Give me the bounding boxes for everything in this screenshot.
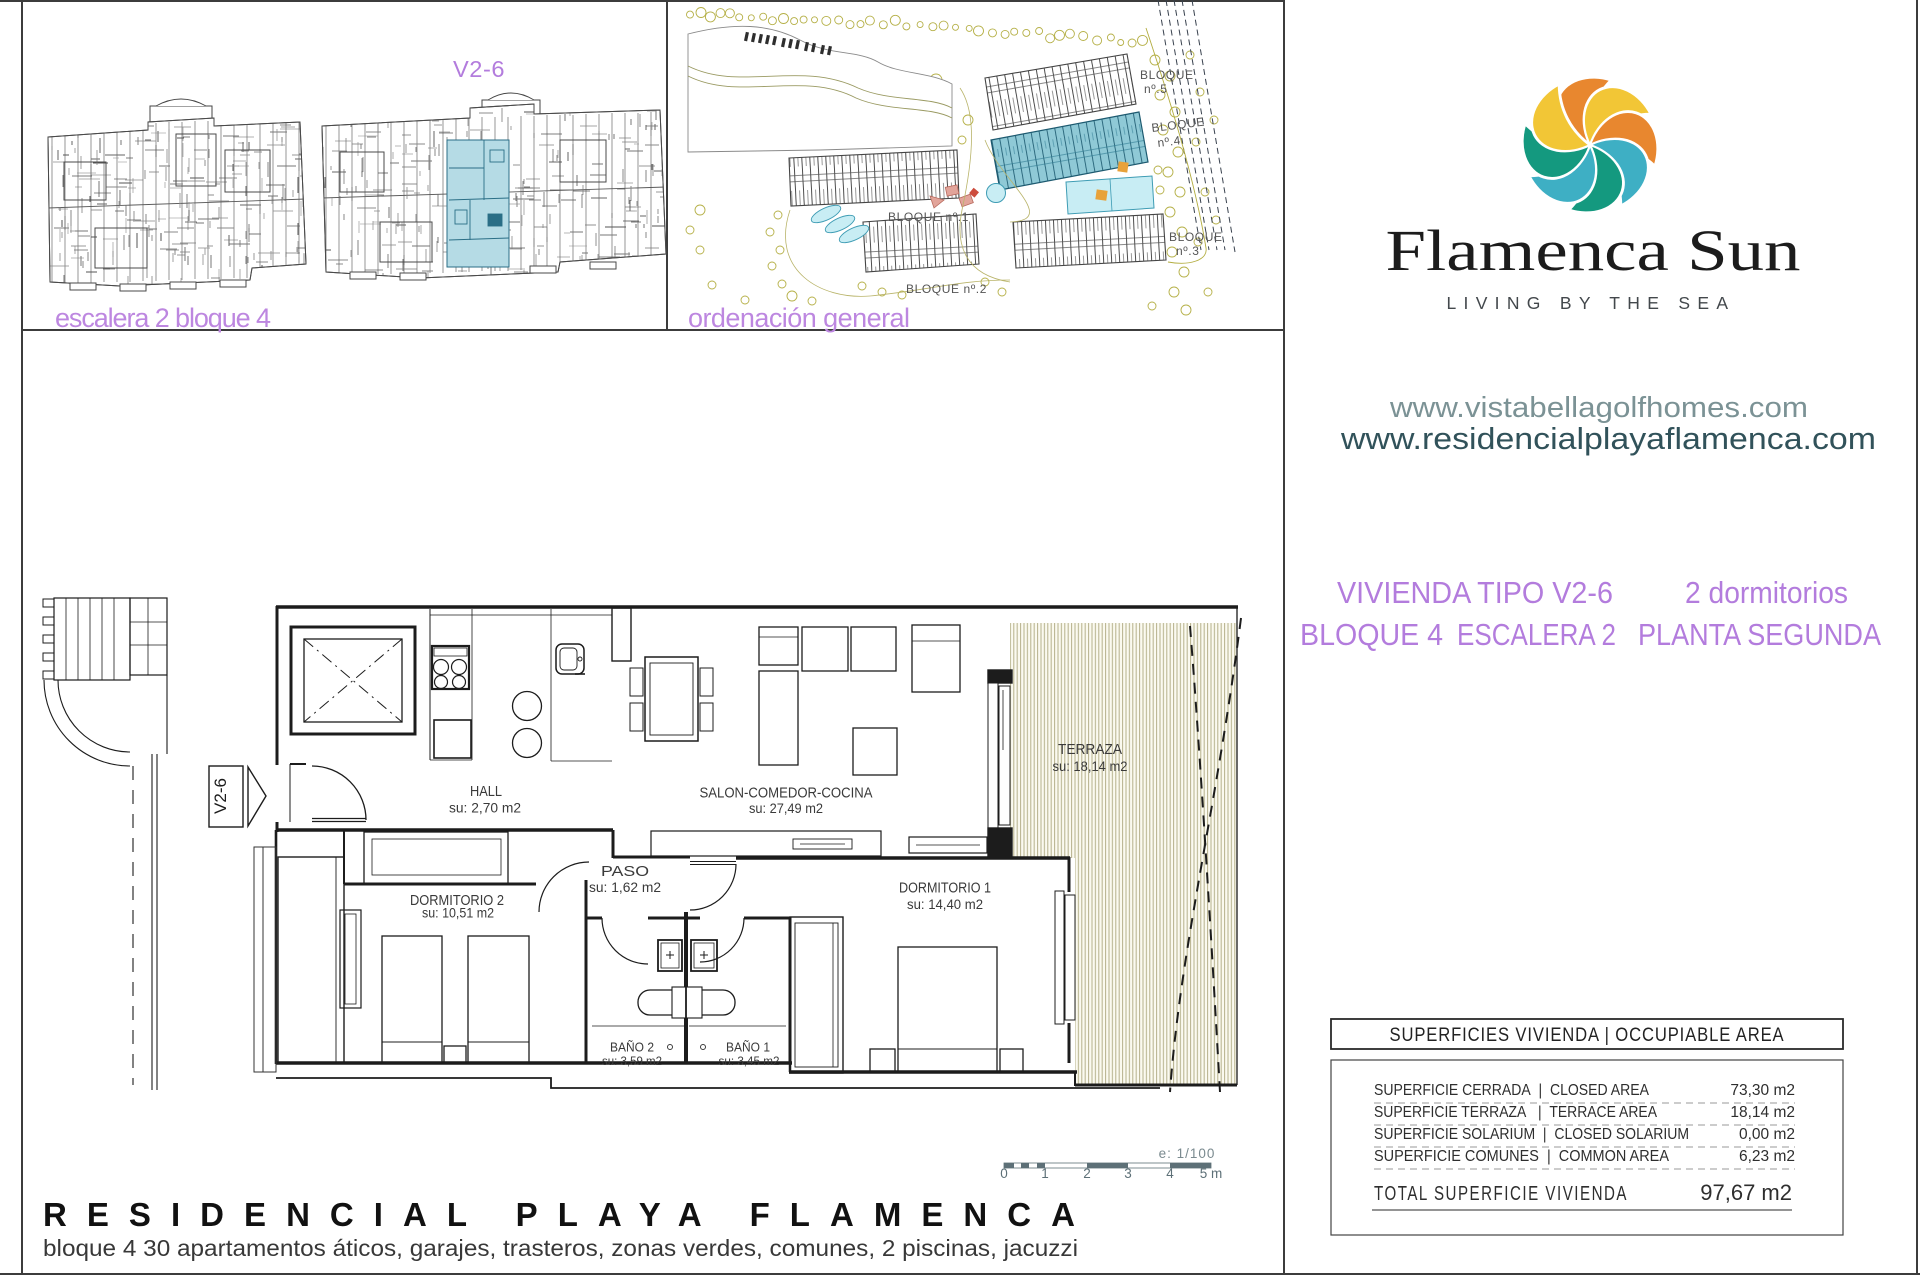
svg-text:SALON-COMEDOR-COCINA: SALON-COMEDOR-COCINA xyxy=(700,786,873,802)
svg-text:0,00 m2: 0,00 m2 xyxy=(1739,1126,1795,1143)
svg-text:BLOQUE: BLOQUE xyxy=(1169,230,1223,244)
svg-text:SUPERFICIE SOLARIUM | CLOSED: SUPERFICIE SOLARIUM | CLOSED SOLARIUM xyxy=(1374,1126,1689,1143)
svg-text:su: 10,51 m2: su: 10,51 m2 xyxy=(422,906,494,921)
svg-text:su: 14,40 m2: su: 14,40 m2 xyxy=(907,897,983,912)
svg-text:TERRAZA: TERRAZA xyxy=(1058,742,1122,758)
svg-text:ESCALERA 2: ESCALERA 2 xyxy=(1457,617,1616,652)
svg-text:SUPERFICIE COMUNES | COMMON: SUPERFICIE COMUNES | COMMON AREA xyxy=(1374,1148,1670,1165)
svg-text:73,30 m2: 73,30 m2 xyxy=(1730,1082,1795,1099)
svg-text:su: 1,62 m2: su: 1,62 m2 xyxy=(589,880,661,895)
svg-text:0: 0 xyxy=(1000,1166,1008,1181)
svg-text:3: 3 xyxy=(1124,1166,1132,1181)
svg-text:e: 1/100: e: 1/100 xyxy=(1159,1146,1216,1161)
svg-text:www.vistabellagolfhomes.com: www.vistabellagolfhomes.com xyxy=(1389,392,1808,424)
svg-text:V2-6: V2-6 xyxy=(453,56,505,82)
svg-text:nº.4: nº.4 xyxy=(1157,133,1182,150)
svg-text:escalera 2 bloque 4: escalera 2 bloque 4 xyxy=(55,303,271,333)
svg-text:2 dormitorios: 2 dormitorios xyxy=(1685,575,1848,610)
svg-text:97,67 m2: 97,67 m2 xyxy=(1700,1180,1792,1205)
svg-text:BLOQUE nº.1: BLOQUE nº.1 xyxy=(888,210,969,224)
svg-text:2: 2 xyxy=(1083,1166,1091,1181)
svg-text:BLOQUE nº.2: BLOQUE nº.2 xyxy=(906,282,987,296)
svg-text:nº.3: nº.3 xyxy=(1176,244,1199,258)
svg-text:4: 4 xyxy=(1166,1166,1174,1181)
svg-text:su: 2,70 m2: su: 2,70 m2 xyxy=(449,801,521,816)
svg-text:su: 3,45 m2: su: 3,45 m2 xyxy=(719,1054,780,1068)
svg-text:BLOQUE 4: BLOQUE 4 xyxy=(1300,617,1443,652)
svg-text:nº.5: nº.5 xyxy=(1144,82,1167,96)
svg-text:5 m: 5 m xyxy=(1200,1166,1223,1181)
svg-text:bloque 4 30 apartamentos ático: bloque 4 30 apartamentos áticos, garajes… xyxy=(43,1235,1078,1261)
svg-text:BLOQUE: BLOQUE xyxy=(1140,68,1194,82)
svg-text:PASO: PASO xyxy=(601,864,649,880)
svg-text:Flamenca Sun: Flamenca Sun xyxy=(1386,218,1801,283)
svg-text:su: 18,14 m2: su: 18,14 m2 xyxy=(1053,759,1128,774)
svg-text:DORMITORIO 1: DORMITORIO 1 xyxy=(899,881,991,897)
svg-text:1: 1 xyxy=(1041,1166,1049,1181)
svg-text:su: 3,59 m2: su: 3,59 m2 xyxy=(602,1054,662,1068)
svg-text:V2-6: V2-6 xyxy=(211,778,230,814)
svg-text:VIVIENDA TIPO V2-6: VIVIENDA TIPO V2-6 xyxy=(1337,575,1613,610)
svg-text:LIVING BY THE SEA: LIVING BY THE SEA xyxy=(1447,293,1734,313)
svg-text:SUPERFICIES VIVIENDA | OCCUPIA: SUPERFICIES VIVIENDA | OCCUPIABLE AREA xyxy=(1390,1025,1785,1046)
svg-text:6,23 m2: 6,23 m2 xyxy=(1739,1148,1795,1165)
svg-text:18,14 m2: 18,14 m2 xyxy=(1730,1104,1795,1121)
svg-text:HALL: HALL xyxy=(470,784,502,800)
svg-text:BAÑO 2: BAÑO 2 xyxy=(610,1041,654,1055)
svg-text:BAÑO 1: BAÑO 1 xyxy=(726,1041,770,1055)
svg-text:www.residencialplayaflamenca.c: www.residencialplayaflamenca.com xyxy=(1340,421,1876,456)
svg-text:SUPERFICIE TERRAZA | TERRAC: SUPERFICIE TERRAZA | TERRACE AREA xyxy=(1374,1104,1658,1121)
svg-text:SUPERFICIE CERRADA | CLOSED: SUPERFICIE CERRADA | CLOSED AREA xyxy=(1374,1082,1650,1099)
svg-text:su: 27,49 m2: su: 27,49 m2 xyxy=(749,801,823,816)
svg-text:ordenación general: ordenación general xyxy=(688,303,910,333)
svg-text:PLANTA SEGUNDA: PLANTA SEGUNDA xyxy=(1638,617,1881,652)
svg-text:TOTAL SUPERFICIE VIVIENDA: TOTAL SUPERFICIE VIVIENDA xyxy=(1374,1183,1628,1205)
